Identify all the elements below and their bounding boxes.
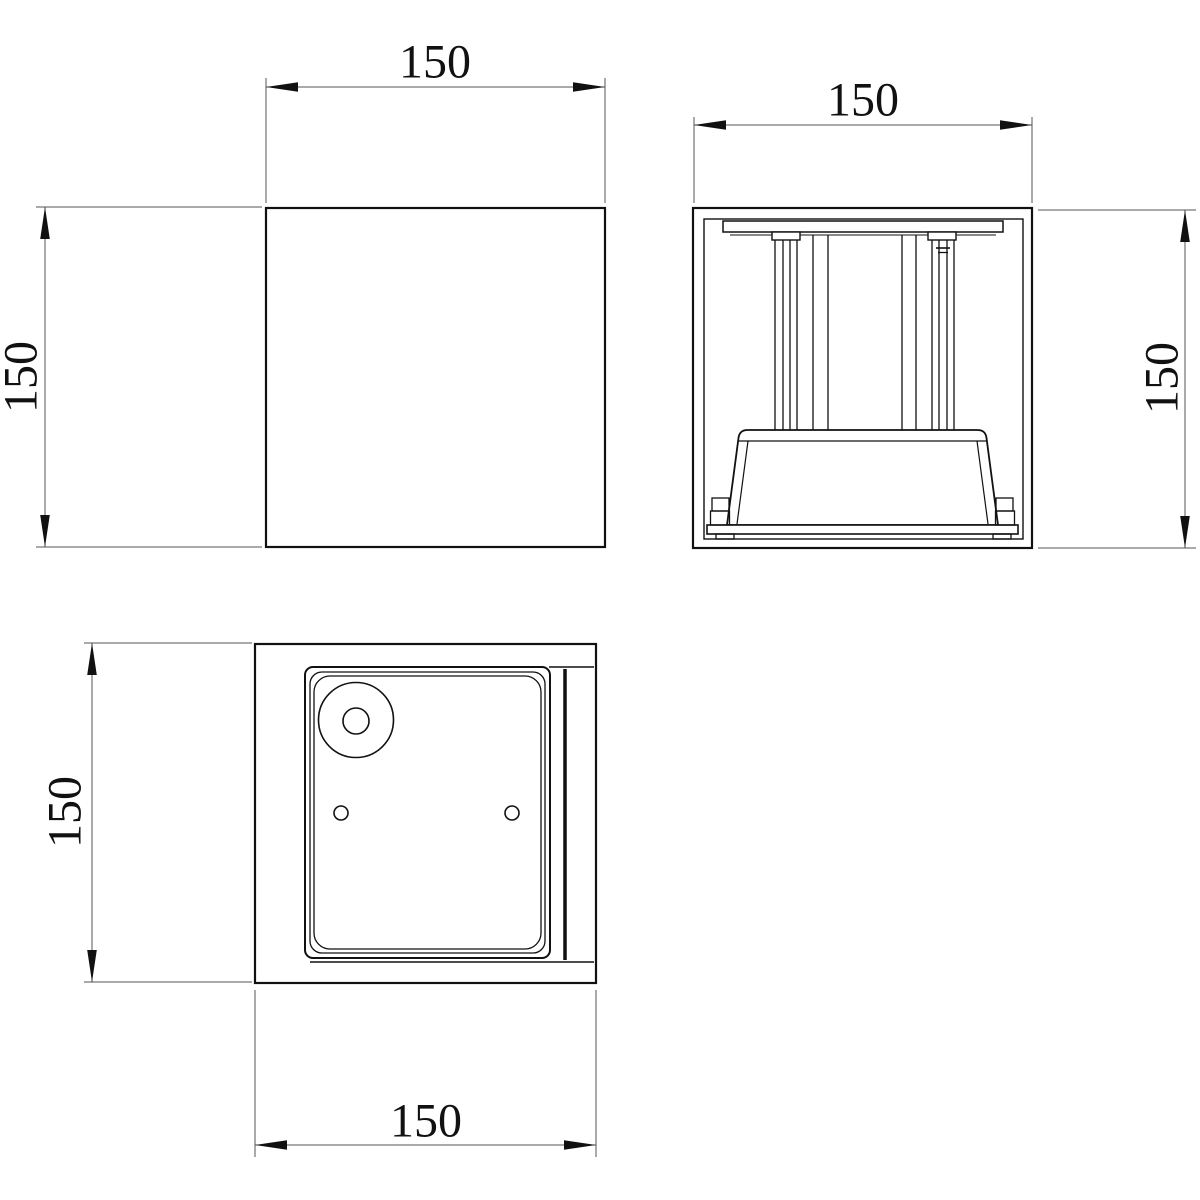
support-post-right [932, 240, 954, 431]
side-height-dimension: 150 [1038, 210, 1196, 548]
top-width-dimension: 150 [255, 990, 596, 1157]
top-plate [723, 221, 1003, 232]
post-cap-left [772, 232, 800, 240]
top-width-value: 150 [390, 1094, 462, 1147]
side-section-view [693, 208, 1032, 548]
arrowhead-top [40, 207, 50, 239]
screw-hole-right [505, 806, 519, 820]
arrowhead-right [1000, 120, 1032, 130]
clip-right-upper [996, 498, 1013, 511]
center-rods [813, 235, 916, 431]
wire-hole-inner [343, 708, 369, 734]
top-height-dimension: 150 [38, 643, 252, 982]
arrowhead-top [87, 643, 97, 675]
arrowhead-right [573, 82, 605, 92]
side-height-value: 150 [1135, 342, 1188, 414]
top-view [255, 644, 596, 983]
side-width-dimension: 150 [694, 73, 1032, 203]
arrowhead-bottom [87, 950, 97, 982]
arrowhead-left [694, 120, 726, 130]
arrowhead-left [255, 1140, 287, 1150]
post-cap-right [928, 232, 956, 240]
front-height-dimension: 150 [0, 207, 262, 547]
back-plate-outer [305, 667, 550, 958]
clip-left-upper [712, 498, 729, 511]
arrowhead-bottom [40, 515, 50, 547]
set-screw [936, 248, 950, 253]
drawing-canvas: 150 150 [0, 0, 1200, 1200]
bottom-plate [707, 525, 1018, 534]
front-height-value: 150 [0, 341, 47, 413]
screw-hole-left [334, 806, 348, 820]
front-width-dimension: 150 [266, 35, 605, 203]
support-post-left [775, 240, 797, 431]
front-view-outline [266, 208, 605, 547]
arrowhead-bottom [1180, 516, 1190, 548]
led-module-base [727, 430, 998, 525]
front-width-value: 150 [399, 35, 471, 88]
arrowhead-left [266, 82, 298, 92]
front-view [266, 208, 605, 547]
arrowhead-top [1180, 210, 1190, 242]
arrowhead-right [564, 1140, 596, 1150]
technical-drawing-sheet: 150 150 [0, 0, 1200, 1200]
side-width-value: 150 [827, 73, 899, 126]
wire-hole-outer [319, 683, 394, 758]
top-height-value: 150 [38, 776, 91, 848]
